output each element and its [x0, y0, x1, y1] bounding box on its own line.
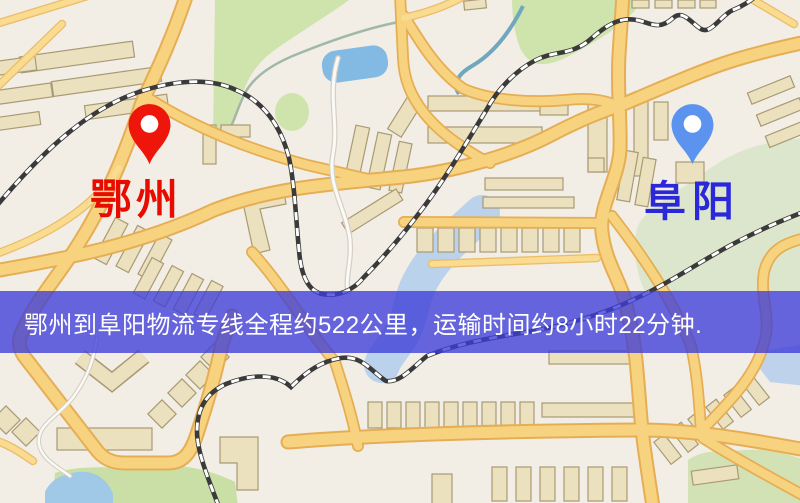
pin-hole: [141, 115, 159, 133]
map-background: [0, 0, 800, 503]
building-block: [432, 474, 452, 503]
building-block: [417, 228, 433, 252]
building-block: [463, 402, 477, 428]
road: [404, 222, 600, 223]
building-block: [406, 402, 420, 428]
pin-body: [672, 104, 714, 164]
building-block: [522, 228, 538, 252]
building-block: [482, 402, 496, 428]
building-block: [501, 402, 515, 428]
building-block: [655, 0, 672, 8]
building-block: [678, 0, 695, 8]
building-block: [540, 467, 555, 501]
route-info-banner: 鄂州到阜阳物流专线全程约522公里，运输时间约8小时22分钟.: [0, 291, 800, 353]
building-block: [564, 228, 580, 252]
building-block: [444, 402, 458, 428]
park-area: [275, 93, 309, 131]
building-block: [564, 467, 579, 501]
map-view: 鄂州 阜阳 鄂州到阜阳物流专线全程约522公里，运输时间约8小时22分钟.: [0, 0, 800, 503]
building-block: [485, 178, 563, 190]
destination-marker[interactable]: [670, 103, 715, 167]
building-block: [57, 428, 152, 450]
building-block: [542, 403, 634, 417]
building-block: [516, 467, 531, 501]
building-block: [387, 402, 401, 428]
building-block: [588, 467, 603, 501]
destination-pin-icon: [670, 103, 715, 167]
building-block: [438, 228, 454, 252]
origin-pin-icon: [126, 103, 173, 167]
pin-body: [129, 104, 171, 164]
building-block: [501, 228, 517, 252]
building-block: [368, 402, 382, 428]
building-block: [480, 228, 496, 252]
building-block: [543, 228, 559, 252]
building-block: [588, 158, 604, 172]
building-block: [464, 0, 487, 10]
building-block: [700, 0, 716, 8]
pin-hole: [684, 115, 702, 133]
building-block: [632, 0, 649, 8]
building-block: [425, 402, 439, 428]
building-block: [654, 102, 668, 140]
building-block: [459, 228, 475, 252]
building-block: [483, 197, 574, 208]
building-block: [492, 467, 507, 501]
destination-marker-label: 阜阳: [644, 181, 740, 223]
origin-marker[interactable]: [126, 103, 173, 167]
building-block: [612, 467, 627, 501]
route-info-text: 鄂州到阜阳物流专线全程约522公里，运输时间约8小时22分钟.: [24, 305, 702, 340]
origin-marker-label: 鄂州: [90, 179, 182, 221]
